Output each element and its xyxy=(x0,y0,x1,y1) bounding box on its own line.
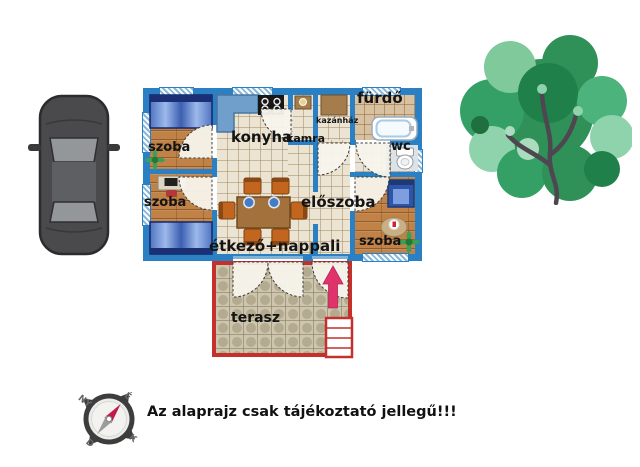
bathtub-faucet xyxy=(409,126,414,131)
car-mirror-right xyxy=(107,144,120,151)
room-label-bedroom-top-left: szoba xyxy=(148,141,190,154)
door-arc xyxy=(356,143,390,177)
disclaimer-text: Az alaprajz csak tájékoztató jellegű!!! xyxy=(147,404,457,420)
car-roof xyxy=(52,162,96,202)
door-threshold xyxy=(312,256,348,259)
tree-leaf xyxy=(537,84,547,94)
tree-canopy xyxy=(518,63,578,123)
round-table-decoration xyxy=(393,222,397,228)
tree-leaf xyxy=(505,126,515,136)
room-label-bedroom-right: szoba xyxy=(359,235,401,248)
bed xyxy=(150,95,212,128)
room-label-wc: wc xyxy=(391,140,411,153)
room-label-pantry: kamra xyxy=(286,133,325,144)
room-label-terrace: terasz xyxy=(231,311,280,325)
stairs xyxy=(326,318,352,357)
toilet-seat xyxy=(401,159,409,166)
room-label-kitchen: konyha xyxy=(231,130,292,145)
tree-canopy xyxy=(471,116,489,134)
armchair xyxy=(388,180,414,207)
tree-leaf xyxy=(573,106,583,116)
kitchen-counter xyxy=(217,95,258,132)
room-label-boiler-room: kazánház xyxy=(316,117,358,125)
plate xyxy=(269,197,279,207)
pantry-appliance-knob xyxy=(300,99,307,106)
door-threshold xyxy=(233,256,303,259)
plate xyxy=(244,197,254,207)
door-arc xyxy=(318,143,350,175)
tree-illustration xyxy=(452,33,632,205)
room-label-bedroom-bottom-left: szoba xyxy=(144,196,186,209)
floor-plan-scene: szoba szoba szoba konyha kamra kazánház … xyxy=(0,0,640,467)
car-rear-window xyxy=(50,202,98,222)
bed xyxy=(150,222,212,254)
tree-canopy xyxy=(584,151,620,187)
car-windshield xyxy=(50,138,98,162)
car-mirror-left xyxy=(28,144,41,151)
boiler xyxy=(321,95,347,115)
car-illustration xyxy=(26,92,122,260)
door-arc xyxy=(268,262,303,297)
room-label-bathroom: fürdő xyxy=(357,91,403,106)
room-label-hallway: előszoba xyxy=(301,195,375,210)
bathtub-inner xyxy=(377,121,411,137)
room-label-dining-living: étkező+nappali xyxy=(209,239,340,254)
compass-rose: É NY D K xyxy=(73,383,145,455)
laptop xyxy=(165,178,178,186)
door-arc xyxy=(233,262,268,297)
